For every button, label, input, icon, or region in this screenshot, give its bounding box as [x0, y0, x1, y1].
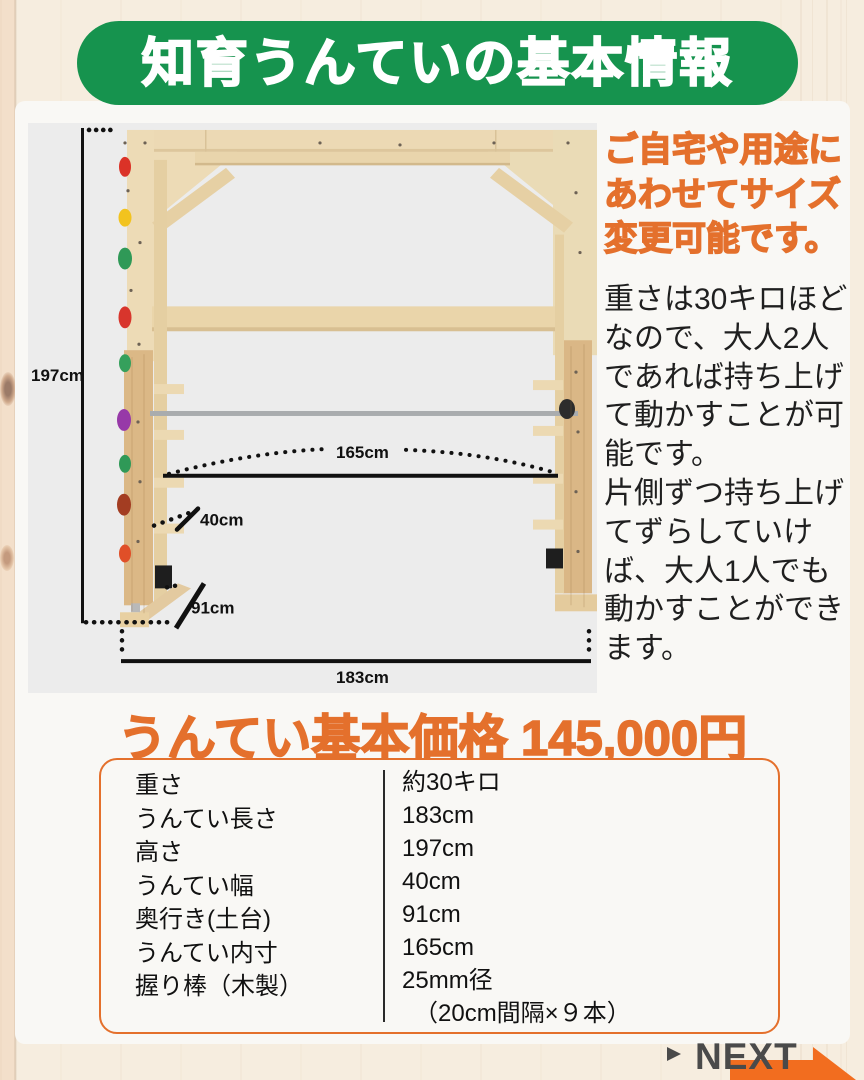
svg-text:165cm: 165cm — [336, 443, 389, 462]
svg-text:91cm: 91cm — [191, 598, 234, 617]
svg-text:197cm: 197cm — [31, 366, 84, 385]
svg-text:40cm: 40cm — [200, 511, 243, 530]
svg-text:183cm: 183cm — [336, 668, 389, 687]
